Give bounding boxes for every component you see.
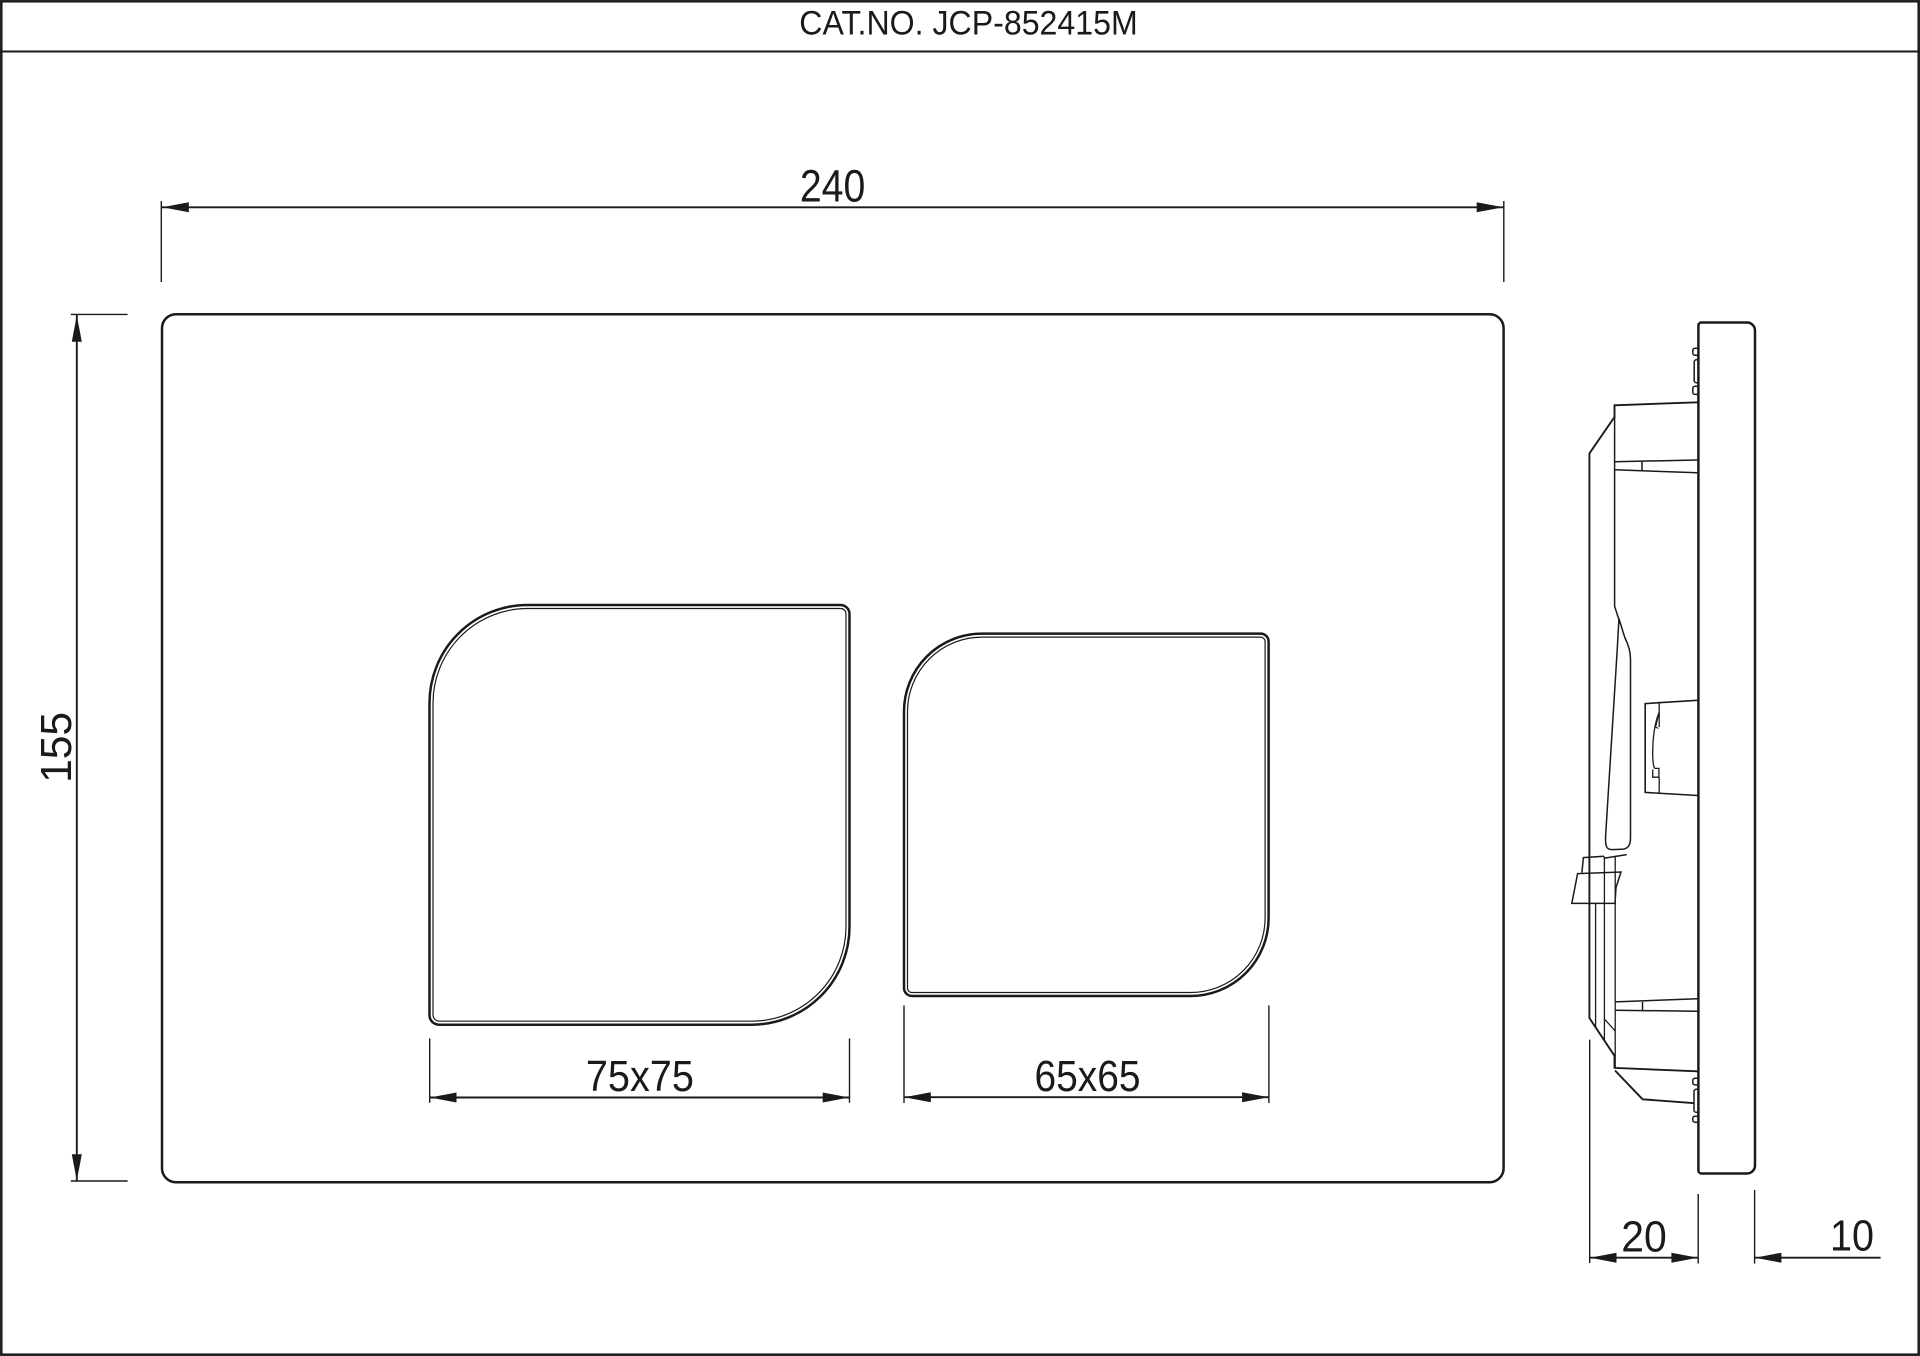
svg-text:240: 240 [800,161,866,212]
svg-text:75x75: 75x75 [586,1052,694,1101]
svg-text:20: 20 [1621,1213,1667,1262]
svg-text:155: 155 [32,712,81,783]
svg-text:65x65: 65x65 [1035,1052,1141,1101]
svg-text:CAT.NO. JCP-852415M: CAT.NO. JCP-852415M [799,5,1138,43]
svg-text:10: 10 [1830,1212,1874,1261]
